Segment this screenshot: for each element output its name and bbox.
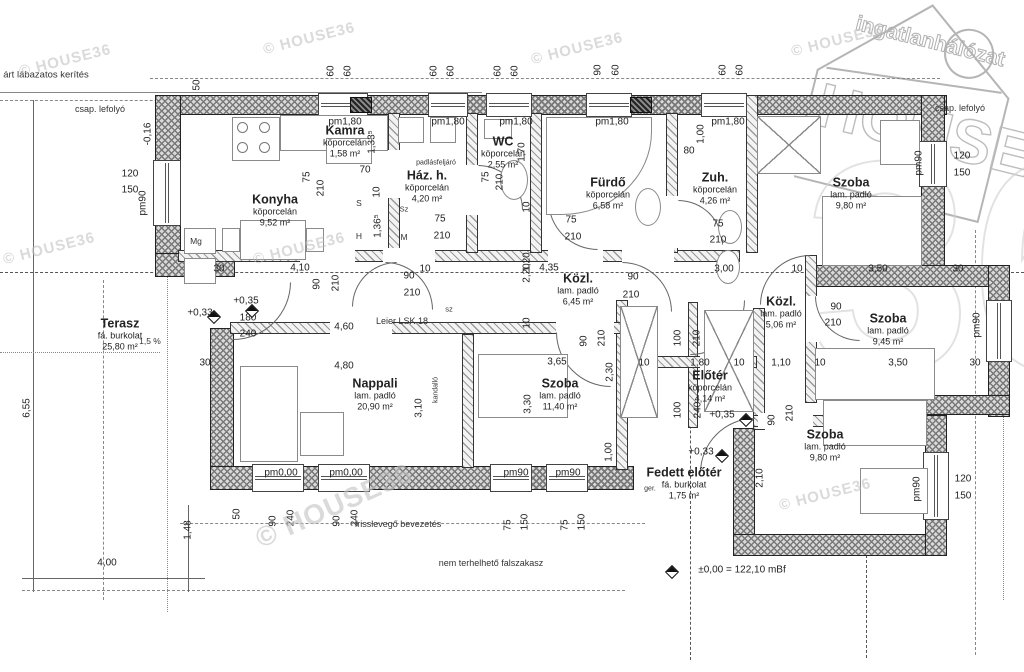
dimension-label: 210 bbox=[316, 180, 327, 197]
dimension-label: -0,16 bbox=[143, 123, 154, 146]
dimension-label: +0,33 bbox=[688, 447, 713, 458]
dimension-label: 90 bbox=[627, 272, 638, 283]
room-material: fá. burkolat bbox=[646, 480, 721, 490]
reference-line bbox=[22, 578, 205, 579]
annotation-note: S bbox=[356, 198, 362, 208]
room-material: lam. padló bbox=[760, 309, 802, 319]
dimension-label: 1,10 bbox=[771, 358, 790, 369]
dimension-label: pm90 bbox=[138, 190, 149, 215]
room-name: Ház. h. bbox=[405, 168, 449, 182]
room-name: Nappali bbox=[352, 376, 397, 390]
dimension-label: 120 bbox=[955, 474, 972, 485]
room-label: Konyhaköporcelán9,52 m² bbox=[252, 192, 298, 227]
dimension-label: 75 bbox=[560, 519, 571, 530]
room-name: Terasz bbox=[98, 316, 143, 330]
dimension-label: pm1,80 bbox=[499, 117, 532, 128]
window bbox=[486, 93, 532, 117]
room-label: Zuh.köporcelán4,26 m² bbox=[693, 170, 737, 205]
stove-burner bbox=[259, 122, 270, 133]
room-name: Szoba bbox=[804, 427, 846, 441]
dimension-label: +0,35 bbox=[709, 410, 734, 421]
dimension-label: 60 bbox=[429, 65, 440, 76]
annotation-note: csap. lefolyó bbox=[935, 103, 985, 113]
room-material: lam. padló bbox=[352, 391, 397, 401]
dimension-label: 3,30 bbox=[523, 394, 534, 413]
dimension-label: 1,70 bbox=[517, 142, 528, 161]
room-label: Szobalam. padló11,40 m² bbox=[539, 376, 581, 411]
reference-line bbox=[33, 100, 34, 592]
window bbox=[701, 93, 747, 117]
furniture-oval bbox=[635, 188, 661, 226]
dimension-label: 60 bbox=[611, 64, 622, 75]
room-label: Szobalam. padló9,80 m² bbox=[804, 427, 846, 462]
dimension-label: 60 bbox=[510, 65, 521, 76]
dimension-label: 90 bbox=[579, 335, 590, 346]
dimension-label: 3,50 bbox=[888, 358, 907, 369]
reference-line bbox=[22, 590, 625, 591]
dimension-label: 90 bbox=[767, 414, 778, 425]
dimension-label: 4,00 bbox=[97, 558, 116, 569]
dimension-label: 75 bbox=[434, 214, 445, 225]
room-area: 1,58 m² bbox=[323, 148, 367, 158]
dimension-label: 1,00 bbox=[604, 442, 615, 461]
dimension-label: 240 bbox=[693, 402, 704, 419]
room-area: 9,52 m² bbox=[252, 217, 298, 227]
room-area: 5,06 m² bbox=[760, 319, 802, 329]
annotation-note: nem terhelhető falszakasz bbox=[439, 558, 544, 568]
room-label: Ház. h.köporcelán4,20 m² bbox=[405, 168, 449, 203]
room-material: köporcelán bbox=[323, 138, 367, 148]
dimension-label: pm90 bbox=[972, 312, 983, 337]
dimension-label: 30 bbox=[969, 358, 980, 369]
room-name: Előtér bbox=[688, 368, 732, 382]
dimension-label: 4,60 bbox=[334, 322, 353, 333]
room-material: köporcelán bbox=[586, 190, 630, 200]
dimension-label: 150 bbox=[122, 185, 139, 196]
room-name: Szoba bbox=[830, 175, 872, 189]
room-name: Zuh. bbox=[693, 170, 737, 184]
reference-line bbox=[188, 505, 189, 592]
dimension-label: 50 bbox=[192, 79, 203, 90]
dimension-label: pm90 bbox=[914, 150, 925, 175]
copyright-watermark: © HOUSE36 bbox=[789, 21, 885, 60]
room-material: köporcelán bbox=[693, 185, 737, 195]
dimension-label: 150 bbox=[955, 491, 972, 502]
dimension-label: 120 bbox=[954, 151, 971, 162]
dimension-label: 30 bbox=[952, 264, 963, 275]
room-material: fá. burkolat bbox=[98, 331, 143, 341]
dimension-label: 10 bbox=[522, 317, 533, 328]
room-material: köporcelán bbox=[688, 383, 732, 393]
dimension-label: 10 bbox=[419, 264, 430, 275]
room-name: Fedett előtér bbox=[646, 465, 721, 479]
room-material: lam. padló bbox=[867, 326, 909, 336]
dimension-label: 4,35 bbox=[539, 263, 558, 274]
interior-wall bbox=[462, 334, 474, 468]
dimension-label: 60 bbox=[446, 65, 457, 76]
dimension-label: 70 bbox=[359, 165, 370, 176]
reference-line bbox=[866, 540, 867, 658]
room-area: 9,80 m² bbox=[830, 200, 872, 210]
dimension-label: 75 bbox=[503, 519, 514, 530]
room-area: 4,26 m² bbox=[693, 195, 737, 205]
dimension-label: 2,10 bbox=[755, 468, 766, 487]
flue-block bbox=[630, 97, 652, 113]
dimension-label: 75 bbox=[481, 171, 492, 182]
dimension-label: 10 bbox=[638, 358, 649, 369]
room-material: köporcelán bbox=[252, 207, 298, 217]
exterior-wall bbox=[155, 95, 947, 115]
furniture-rect bbox=[398, 117, 424, 143]
room-area: 25,80 m² bbox=[98, 341, 143, 351]
dimension-label: pm1,80 bbox=[595, 117, 628, 128]
dimension-label: 150 bbox=[577, 514, 588, 531]
flue-block bbox=[350, 97, 372, 113]
room-material: köporcelán bbox=[405, 183, 449, 193]
dimension-label: pm1,80 bbox=[711, 117, 744, 128]
room-name: Szoba bbox=[867, 311, 909, 325]
room-material: lam. padló bbox=[539, 391, 581, 401]
furniture-xbox bbox=[757, 116, 821, 174]
dimension-label: 90 bbox=[312, 278, 323, 289]
dimension-label: +0,35 bbox=[233, 296, 258, 307]
window bbox=[986, 300, 1012, 362]
stove-burner bbox=[237, 122, 248, 133]
annotation-note: Sz bbox=[400, 205, 409, 214]
dimension-label: 120 bbox=[122, 169, 139, 180]
annotation-note: sz bbox=[445, 305, 453, 314]
dimension-label: 3,00 bbox=[714, 264, 733, 275]
room-area: 4,20 m² bbox=[405, 193, 449, 203]
room-area: 9,45 m² bbox=[867, 336, 909, 346]
dimension-label: 150 bbox=[520, 514, 531, 531]
level-marker bbox=[665, 565, 679, 579]
dimension-label: 210 bbox=[331, 275, 342, 292]
furniture-rect bbox=[222, 228, 240, 252]
room-area: 6,58 m² bbox=[586, 200, 630, 210]
exterior-wall bbox=[808, 265, 1010, 287]
annotation-note: M bbox=[400, 232, 407, 242]
annotation-note: 1,5 % bbox=[139, 336, 161, 346]
dimension-label: 10 bbox=[372, 186, 383, 197]
dimension-label: ±0,00 = 122,10 mBf bbox=[698, 565, 786, 576]
dimension-label: 210 bbox=[434, 231, 451, 242]
dimension-label: 3,50 bbox=[868, 264, 887, 275]
room-material: lam. padló bbox=[830, 190, 872, 200]
dimension-label: pm0,00 bbox=[264, 468, 297, 479]
dimension-label: 60 bbox=[326, 65, 337, 76]
room-area: 20,90 m² bbox=[352, 401, 397, 411]
dimension-label: 90 bbox=[593, 64, 604, 75]
room-label: Szobalam. padló9,80 m² bbox=[830, 175, 872, 210]
dimension-label: 2,30 bbox=[605, 362, 616, 381]
window bbox=[428, 93, 468, 117]
room-material: lam. padló bbox=[804, 442, 846, 452]
room-area: 6,45 m² bbox=[557, 296, 599, 306]
furniture-rect bbox=[815, 348, 935, 400]
dimension-label: 90 bbox=[403, 271, 414, 282]
room-label: Közl.lam. padló6,45 m² bbox=[557, 271, 599, 306]
dimension-label: 90 bbox=[830, 302, 841, 313]
interior-wall bbox=[530, 113, 542, 253]
dimension-label: 30 bbox=[199, 358, 210, 369]
dimension-label: 1,33⁵ bbox=[367, 130, 378, 154]
dimension-label: 3,65 bbox=[547, 357, 566, 368]
dimension-label: 1,00 bbox=[696, 124, 707, 143]
dimension-label: 150 bbox=[954, 168, 971, 179]
room-name: Szoba bbox=[539, 376, 581, 390]
room-area: 9,80 m² bbox=[804, 452, 846, 462]
dimension-label: 60 bbox=[718, 64, 729, 75]
dimension-label: pm90 bbox=[503, 468, 528, 479]
annotation-note: ger. bbox=[644, 486, 656, 493]
furniture-rect bbox=[184, 258, 216, 284]
reference-line bbox=[150, 78, 940, 79]
dimension-label: 75 bbox=[712, 219, 723, 230]
dimension-label: 210 bbox=[495, 174, 506, 191]
door-opening bbox=[622, 248, 674, 264]
dimension-label: 210 bbox=[785, 405, 796, 422]
dimension-label: 210 bbox=[597, 330, 608, 347]
room-name: Fürdő bbox=[586, 175, 630, 189]
room-label: Előtérköporcelán4,14 m² bbox=[688, 368, 732, 403]
dimension-label: 3,10 bbox=[414, 398, 425, 417]
room-name: Közl. bbox=[557, 271, 599, 285]
dimension-label: pm90 bbox=[912, 476, 923, 501]
door-opening bbox=[388, 150, 400, 198]
dimension-label: 75 bbox=[565, 215, 576, 226]
room-name: Közl. bbox=[760, 294, 802, 308]
dimension-label: 10 bbox=[791, 264, 802, 275]
dimension-label: 2,20 bbox=[522, 263, 533, 282]
window bbox=[586, 93, 632, 117]
reference-line bbox=[0, 352, 160, 353]
dimension-label: 80 bbox=[683, 146, 694, 157]
dimension-label: 60 bbox=[493, 65, 504, 76]
room-material: lam. padló bbox=[557, 286, 599, 296]
dimension-label: pm1,80 bbox=[328, 117, 361, 128]
dimension-label: 10 bbox=[522, 201, 533, 212]
annotation-note: H bbox=[356, 231, 362, 241]
dimension-label: 240 bbox=[240, 329, 257, 340]
floor-plan: ingatlanhálózat HOUSE 36 Konyhaköporcelá… bbox=[0, 0, 1024, 672]
dimension-label: 60 bbox=[735, 64, 746, 75]
dimension-label: 210 bbox=[692, 330, 703, 347]
room-label: Fedett előtérfá. burkolat1,75 m² bbox=[646, 465, 721, 500]
dimension-label: 210 bbox=[404, 288, 421, 299]
copyright-watermark: © HOUSE36 bbox=[1, 229, 97, 268]
dimension-label: 1,36⁵ bbox=[373, 214, 384, 238]
dimension-label: 100 bbox=[673, 330, 684, 347]
dimension-label: pm90 bbox=[555, 468, 580, 479]
dimension-label: 1,48 bbox=[183, 520, 194, 539]
dimension-label: 10 bbox=[814, 358, 825, 369]
dimension-label: 50 bbox=[232, 508, 243, 519]
dimension-label: 210 bbox=[623, 290, 640, 301]
stove-burner bbox=[259, 142, 270, 153]
dimension-label: 210 bbox=[565, 232, 582, 243]
copyright-watermark: © HOUSE36 bbox=[529, 29, 625, 68]
copyright-watermark: © HOUSE36 bbox=[261, 19, 357, 58]
dimension-label: 1,80 bbox=[690, 358, 709, 369]
room-area: 11,40 m² bbox=[539, 401, 581, 411]
furniture-rect bbox=[300, 412, 344, 456]
annotation-note: Leier LSK 18 bbox=[376, 316, 428, 326]
exterior-wall bbox=[733, 534, 947, 556]
room-label: Szobalam. padló9,45 m² bbox=[867, 311, 909, 346]
exterior-wall bbox=[921, 95, 945, 287]
dimension-label: 75 bbox=[302, 171, 313, 182]
dimension-label: 6,55 bbox=[22, 398, 33, 417]
furniture-stove bbox=[232, 117, 280, 161]
room-label: Nappalilam. padló20,90 m² bbox=[352, 376, 397, 411]
dimension-label: 4,10 bbox=[290, 263, 309, 274]
dimension-label: 10 bbox=[733, 358, 744, 369]
annotation-note: kandalló bbox=[433, 377, 440, 403]
reference-line bbox=[0, 92, 482, 93]
room-label: Kamraköporcelán1,58 m² bbox=[323, 123, 367, 158]
annotation-note: Mg bbox=[190, 236, 202, 246]
room-label: Fürdőköporcelán6,58 m² bbox=[586, 175, 630, 210]
door-swing-arc bbox=[622, 262, 672, 312]
dimension-label: 210 bbox=[825, 318, 842, 329]
annotation-note: padlásfeljáró bbox=[416, 160, 456, 167]
room-label: Teraszfá. burkolat25,80 m² bbox=[98, 316, 143, 351]
room-name: Konyha bbox=[252, 192, 298, 206]
annotation-note: frisslevegő bevezetés bbox=[355, 519, 442, 529]
annotation-note: csap. lefolyó bbox=[75, 104, 125, 114]
dimension-label: 30 bbox=[213, 264, 224, 275]
stove-burner bbox=[237, 142, 248, 153]
reference-line bbox=[975, 230, 976, 655]
room-area: 1,75 m² bbox=[646, 490, 721, 500]
window bbox=[153, 160, 181, 226]
room-label: Közl.lam. padló5,06 m² bbox=[760, 294, 802, 329]
dimension-label: 60 bbox=[343, 65, 354, 76]
dimension-label: pm1,80 bbox=[431, 117, 464, 128]
furniture-rect bbox=[240, 366, 298, 462]
copyright-watermark: © HOUSE36 bbox=[777, 475, 873, 514]
dimension-label: 210 bbox=[710, 235, 727, 246]
dimension-label: 100 bbox=[673, 402, 684, 419]
dimension-label: 4,80 bbox=[334, 361, 353, 372]
